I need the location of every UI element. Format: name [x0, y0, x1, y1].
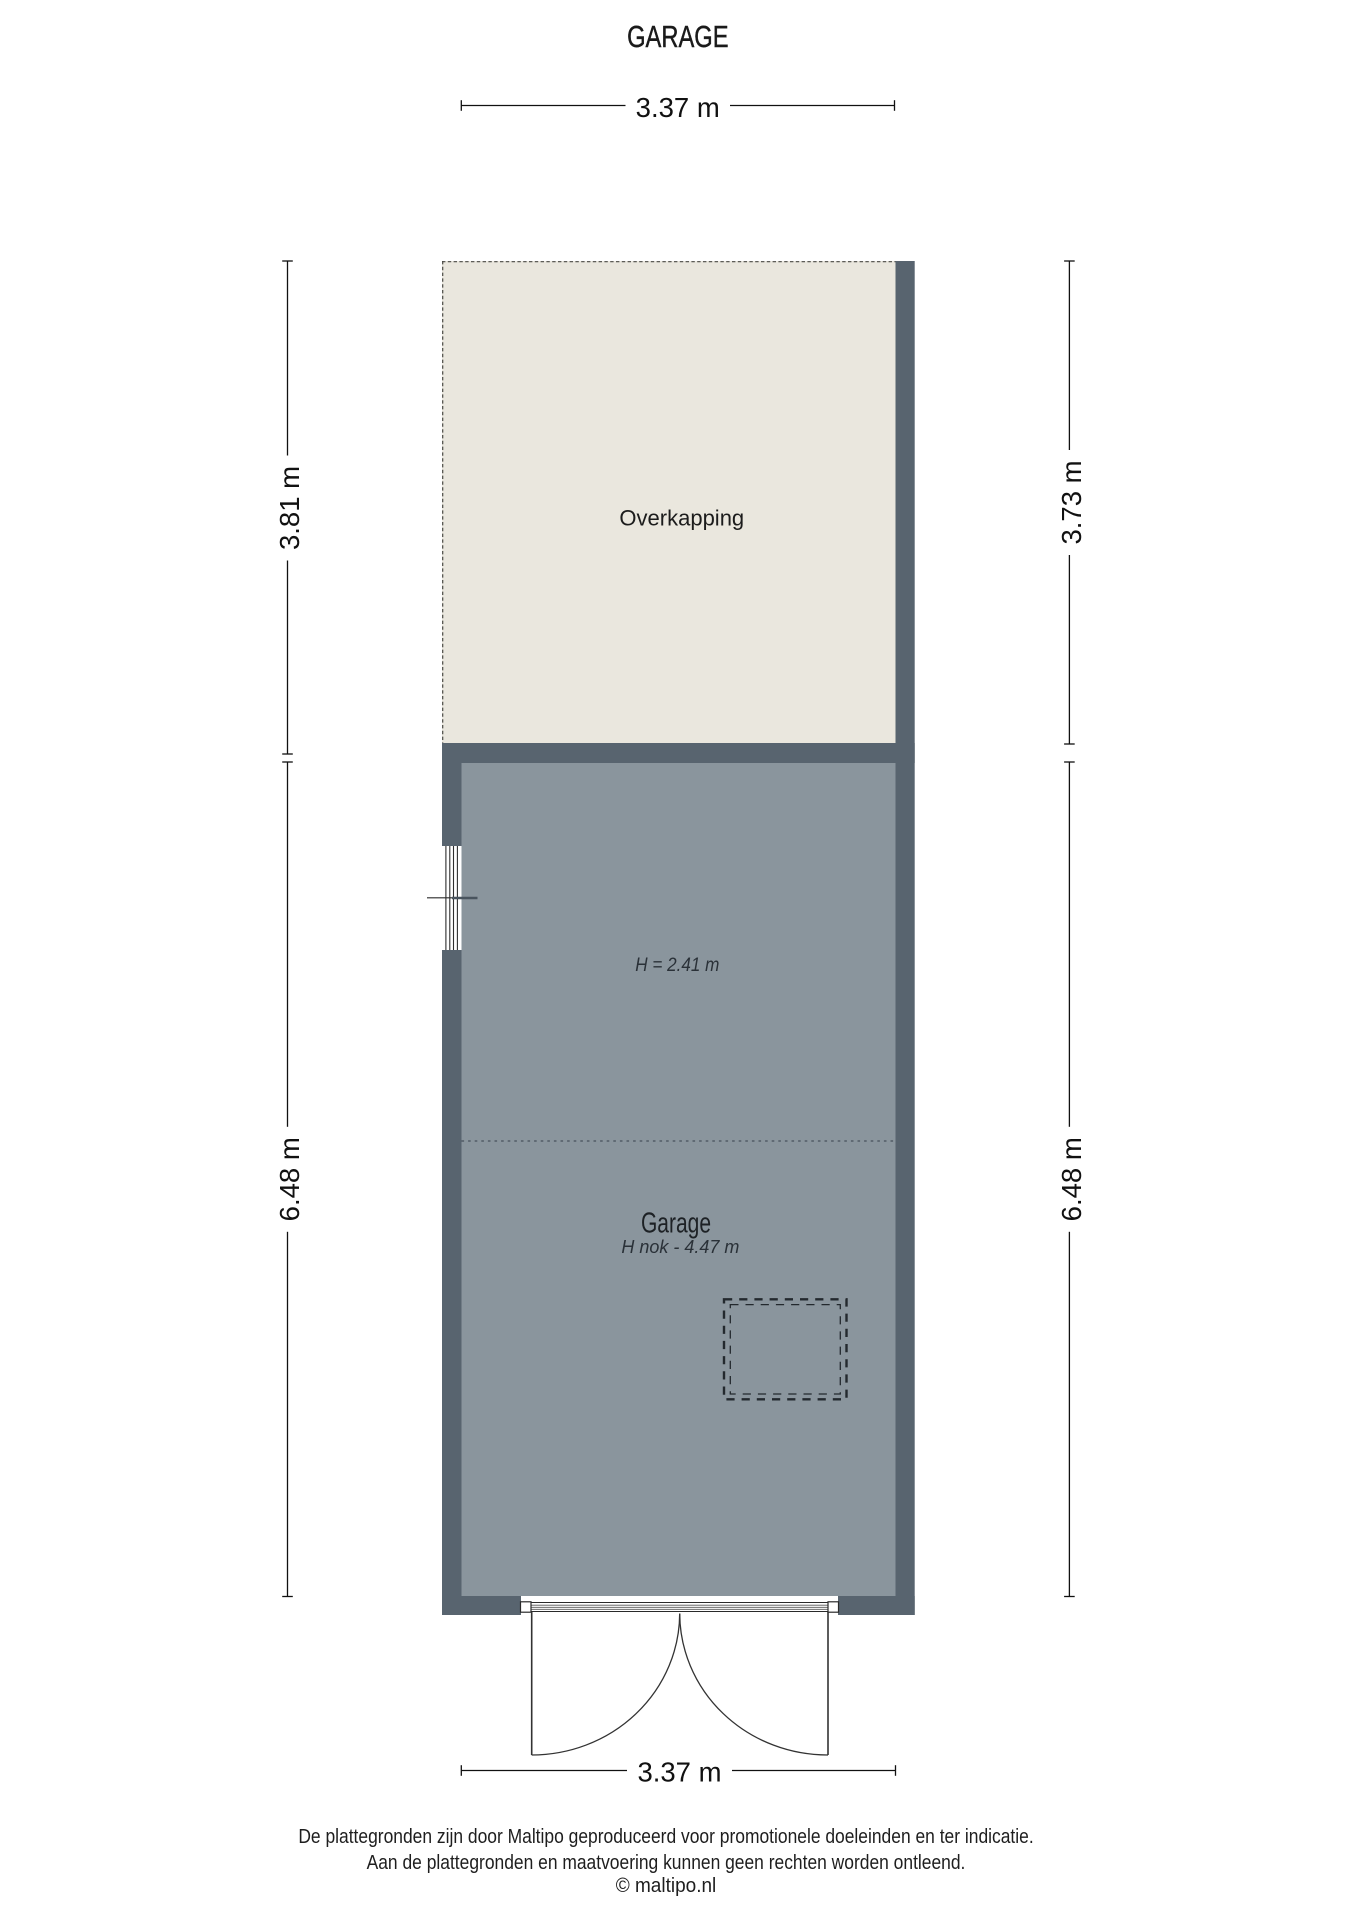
svg-text:© maltipo.nl: © maltipo.nl: [616, 1875, 717, 1898]
svg-text:GARAGE: GARAGE: [627, 19, 728, 54]
svg-text:3.81 m: 3.81 m: [274, 466, 305, 550]
svg-text:Aan de plattegronden en maatvo: Aan de plattegronden en maatvoering kunn…: [367, 1851, 966, 1873]
svg-text:6.48 m: 6.48 m: [1056, 1137, 1087, 1221]
svg-text:H nok - 4.47 m: H nok - 4.47 m: [621, 1237, 739, 1257]
svg-text:H = 2.41 m: H = 2.41 m: [635, 954, 719, 975]
svg-text:3.73 m: 3.73 m: [1056, 460, 1087, 544]
svg-text:3.37 m: 3.37 m: [637, 1757, 721, 1788]
svg-text:De plattegronden zijn door Mal: De plattegronden zijn door Maltipo gepro…: [298, 1825, 1033, 1847]
svg-text:6.48 m: 6.48 m: [274, 1137, 305, 1221]
svg-text:Overkapping: Overkapping: [619, 506, 744, 531]
svg-text:3.37 m: 3.37 m: [636, 92, 720, 123]
svg-text:Garage: Garage: [641, 1207, 711, 1239]
